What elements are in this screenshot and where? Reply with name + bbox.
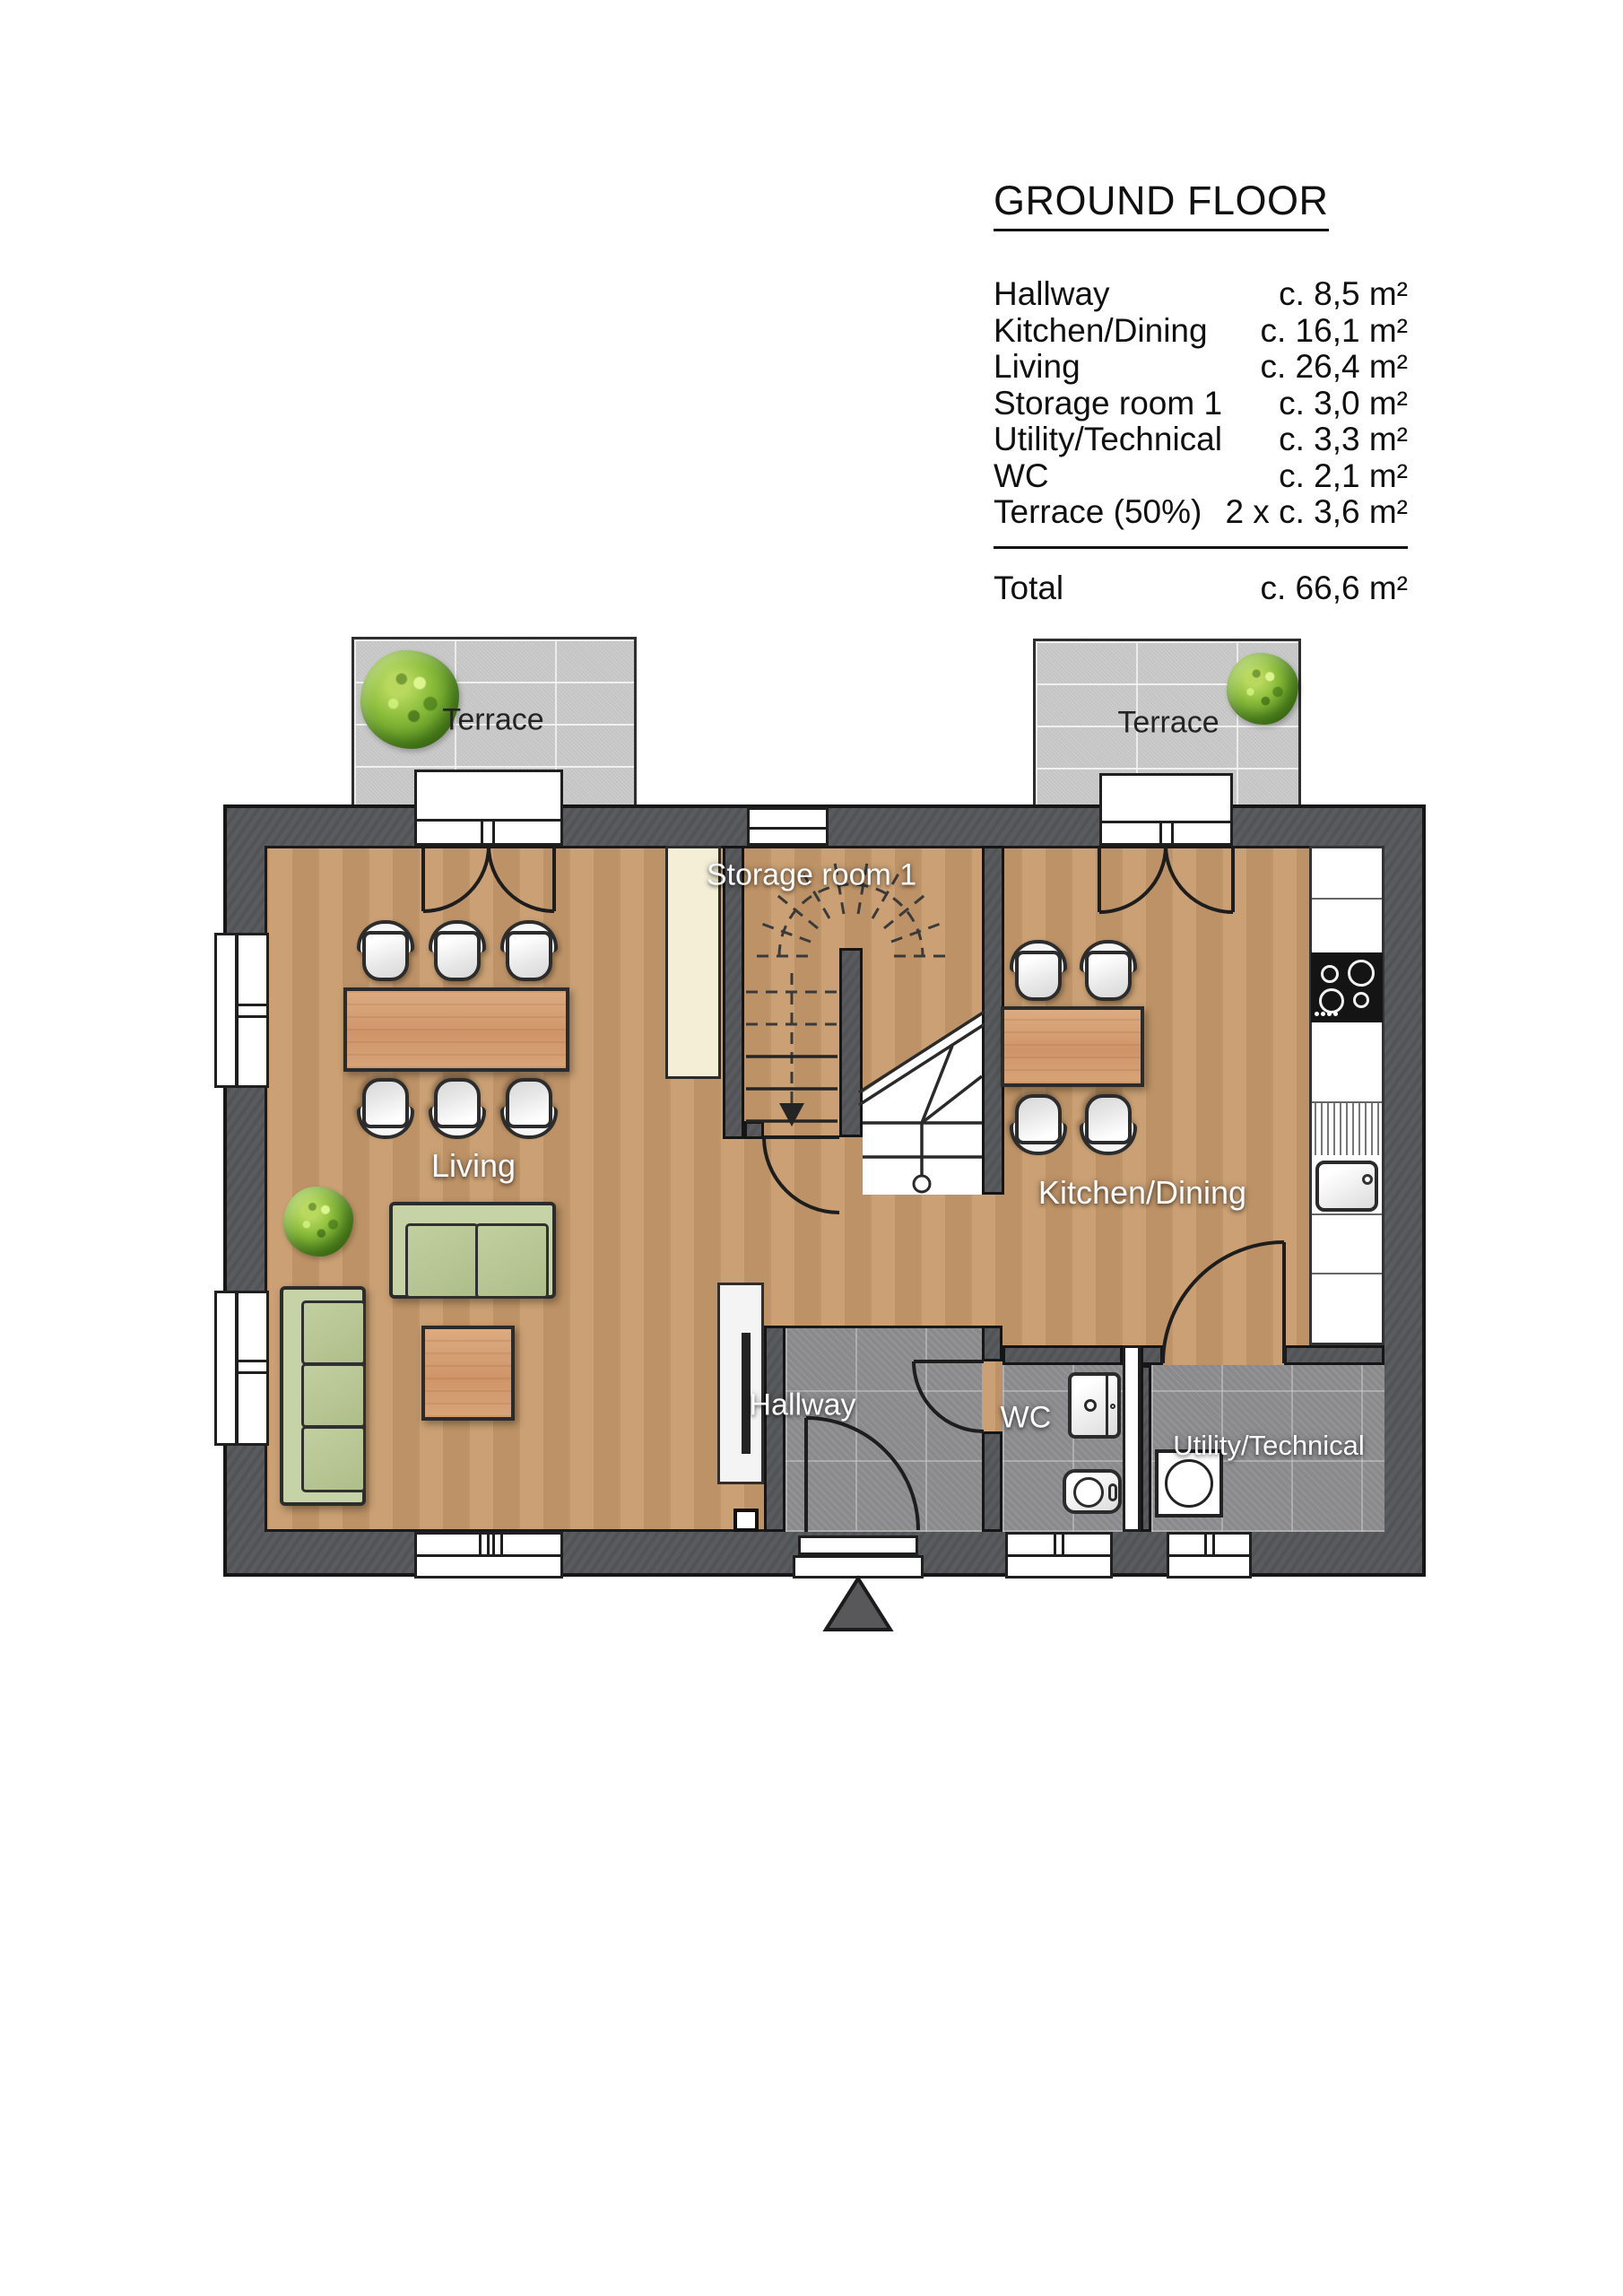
stair-newel-icon bbox=[914, 1176, 930, 1192]
hallway-room-label: Hallway bbox=[749, 1388, 855, 1423]
kitchen-room-label: Kitchen/Dining bbox=[1038, 1174, 1246, 1212]
door-swing-arc bbox=[1163, 1242, 1284, 1363]
door-swing-arc bbox=[806, 1418, 918, 1530]
stair-walk-arc-dashed bbox=[779, 884, 923, 956]
stair-break-line bbox=[859, 1024, 985, 1105]
stair-winder-dashed bbox=[884, 892, 928, 928]
wc-room-label: WC bbox=[1001, 1401, 1052, 1436]
door-swing-arc bbox=[1099, 846, 1166, 912]
stair-direction-arrow bbox=[779, 1103, 804, 1126]
terrace-left-label: Terrace bbox=[442, 703, 543, 738]
plan-linework bbox=[0, 0, 1623, 2296]
utility-room-label: Utility/Technical bbox=[1173, 1430, 1365, 1462]
entrance-arrow-icon bbox=[826, 1578, 890, 1630]
terrace-right-label: Terrace bbox=[1117, 706, 1219, 741]
door-swing-arc bbox=[489, 846, 554, 911]
stair-break-line bbox=[859, 1012, 985, 1092]
door-swing-arc bbox=[764, 1137, 839, 1213]
door-swing-arc bbox=[1166, 846, 1233, 912]
door-swing-arc bbox=[423, 846, 489, 911]
living-room-label: Living bbox=[431, 1147, 516, 1185]
floor-plan-page: GROUND FLOOR Hallwayc. 8,5 m² Kitchen/Di… bbox=[0, 0, 1623, 2296]
door-swing-arc bbox=[914, 1361, 984, 1431]
storage-room-label: Storage room 1 bbox=[707, 858, 916, 893]
